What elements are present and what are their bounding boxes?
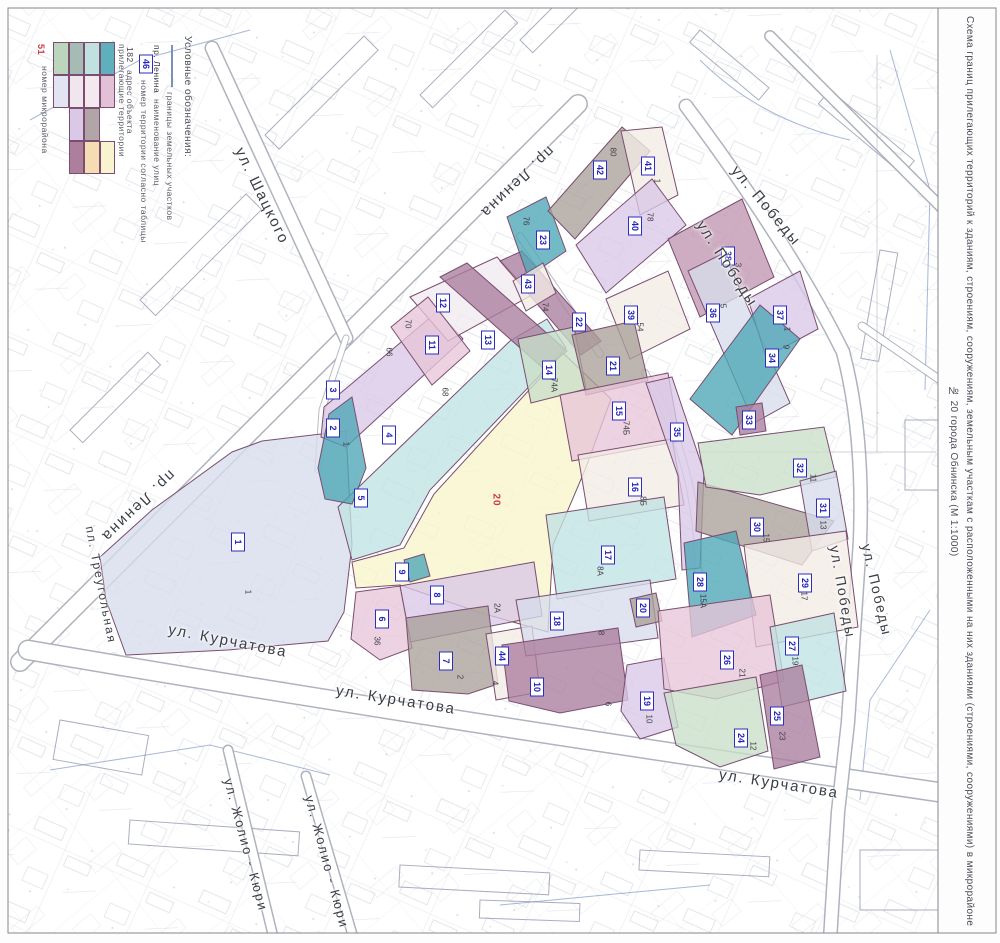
legend-swatch xyxy=(84,42,100,75)
map-linework xyxy=(0,0,998,943)
legend-swatch xyxy=(100,141,116,174)
legend-swatch xyxy=(69,108,85,141)
legend-swatch xyxy=(84,141,100,174)
legend-swatch xyxy=(53,75,69,108)
legend-swatch xyxy=(69,75,85,108)
map-sheet: 1154683662112117013227423764342804114078… xyxy=(0,0,1000,943)
legend-territory-number-label: номер территории согласно таблицы xyxy=(139,80,149,243)
parcel-33 xyxy=(736,403,766,435)
legend-street-name-symbol: пр. Ленина xyxy=(152,45,162,93)
legend-district-number-label: номер микрорайона xyxy=(40,66,50,154)
legend-boundary-label: границы земельных участков xyxy=(165,92,175,221)
legend-adjacent-label: прилегающие территории xyxy=(117,44,127,157)
legend-territory-number-symbol: 46 xyxy=(139,55,153,74)
legend-swatch xyxy=(100,42,116,75)
sheet-title: Схема границ прилегающих территорий к зд… xyxy=(941,10,977,933)
legend-swatch xyxy=(69,141,85,174)
legend-district-number-symbol: 51 xyxy=(36,44,46,55)
legend-swatch xyxy=(69,42,85,75)
sheet-title-line2: № 20 города Обнинска (М 1:1000) xyxy=(945,10,961,933)
legend-color-grid xyxy=(53,42,117,175)
legend-swatch xyxy=(53,42,69,75)
legend-title: Условные обозначения: xyxy=(182,36,193,157)
parcel-20 xyxy=(630,593,662,627)
legend-swatch xyxy=(100,75,116,108)
legend-swatch xyxy=(84,75,100,108)
legend-street-name-label: наименование улиц xyxy=(152,99,162,186)
boundary-line-symbol xyxy=(171,45,173,87)
legend-swatch xyxy=(84,108,100,141)
cadastral-map xyxy=(0,0,1000,943)
sheet-title-line1: Схема границ прилегающих территорий к зд… xyxy=(961,10,977,933)
parcel-7 xyxy=(406,606,498,694)
